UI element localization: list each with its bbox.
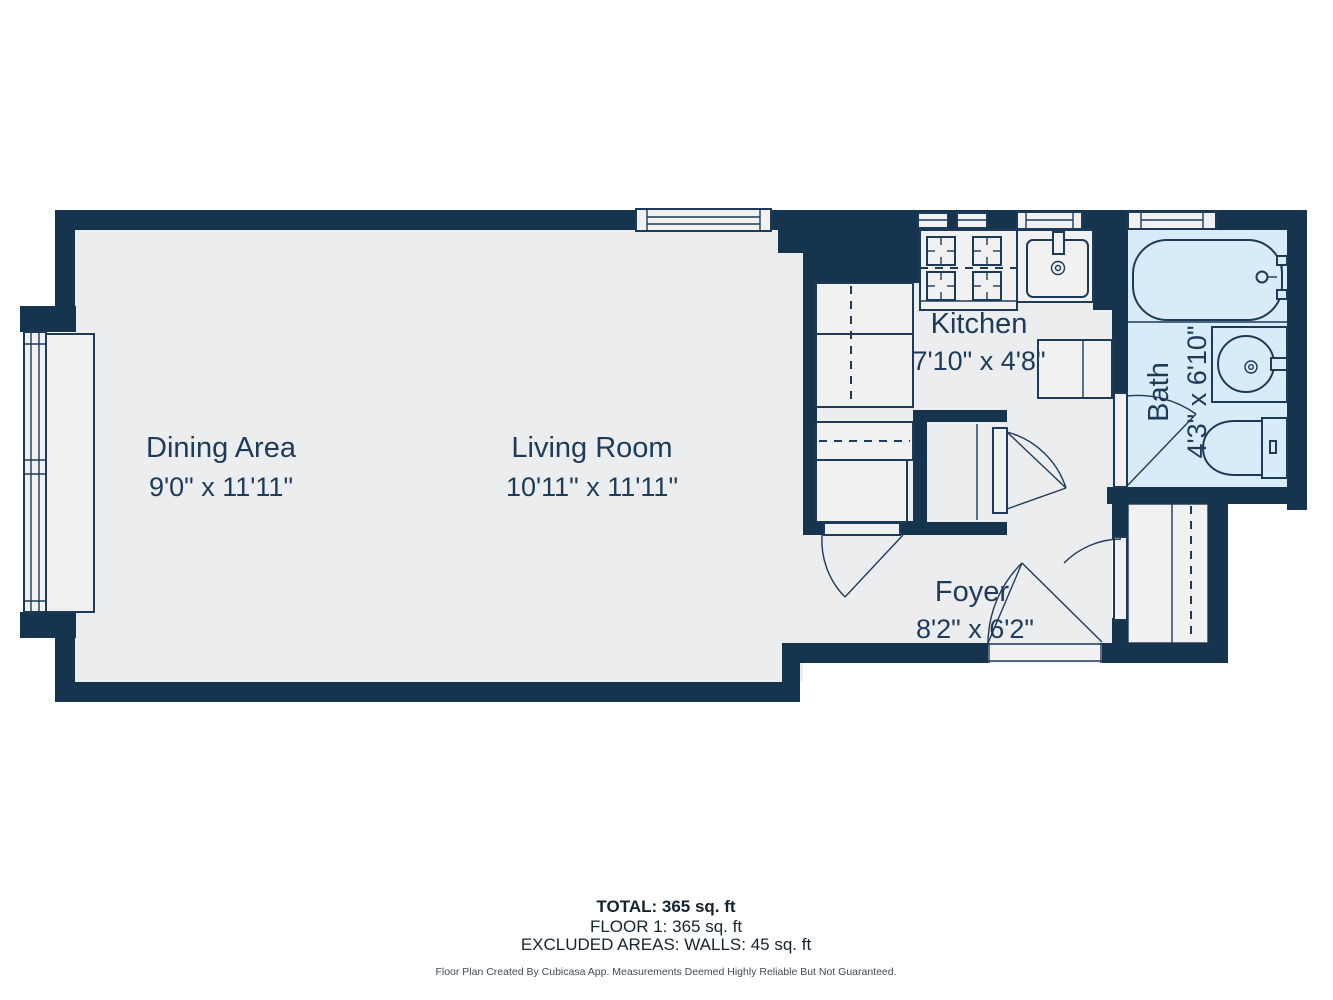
kitchen-label: Kitchen — [931, 308, 1028, 340]
kitchen-sink — [1017, 230, 1093, 302]
stove-window-left — [918, 213, 948, 228]
dining-area-label: Dining Area — [146, 432, 297, 464]
bathtub — [1133, 240, 1287, 320]
floor1-area-text: FLOOR 1: 365 sq. ft — [590, 917, 742, 936]
living-room-label: Living Room — [511, 432, 672, 464]
floor-plan-page: Dining Area 9'0" x 11'11" Living Room 10… — [0, 0, 1333, 1000]
wall-closet-divider-top — [1112, 504, 1128, 539]
wall-living-kitchen-divider — [803, 230, 817, 535]
wall-foyer-bottom — [782, 643, 988, 663]
excluded-area-text: EXCLUDED AREAS: WALLS: 45 sq. ft — [521, 935, 812, 954]
kitchen-sink-window — [1017, 212, 1082, 229]
wall-bath-bottom — [1107, 487, 1307, 504]
wall-utility-top — [913, 410, 1007, 422]
dining-area-dims: 9'0" x 11'11" — [149, 472, 293, 502]
wall-utility-bottom — [913, 522, 1007, 535]
wall-kitchen-top-mass — [817, 230, 920, 283]
wall-closetdoor-stub-left — [803, 521, 824, 535]
disclaimer-text: Floor Plan Created By Cubicasa App. Meas… — [435, 966, 896, 978]
toilet — [1203, 418, 1287, 478]
total-area-text: TOTAL: 365 sq. ft — [596, 897, 736, 916]
lower-cabinet-block — [816, 422, 913, 522]
wall-bath-left — [1112, 210, 1128, 393]
wall-closet-divider-bottom — [1112, 618, 1128, 643]
bath-label: Bath — [1143, 362, 1175, 422]
wall-utility-left — [913, 422, 927, 535]
window-seat — [46, 334, 94, 612]
wardrobe-closet — [1128, 504, 1208, 643]
stove-window-right — [957, 213, 987, 228]
bath-window — [1128, 212, 1216, 229]
bath-dims: 4'3" x 6'10" — [1182, 325, 1212, 458]
kitchen-dims: 7'10" x 4'8" — [912, 346, 1045, 376]
wall-closet-right — [1208, 504, 1228, 663]
wall-bay-top — [20, 306, 76, 332]
corridor-cabinet — [1038, 340, 1112, 398]
wall-bath-right — [1287, 210, 1307, 510]
floor-plan-canvas: Dining Area 9'0" x 11'11" Living Room 10… — [0, 0, 1333, 1000]
foyer-dims: 8'2" x 6'2" — [916, 614, 1034, 644]
counter-cabinet-block — [816, 283, 913, 407]
utility-closet-floor — [927, 422, 993, 522]
stove-burners — [920, 230, 1017, 310]
wall-bottom-main — [55, 682, 800, 702]
summary-block: TOTAL: 365 sq. ft FLOOR 1: 365 sq. ft EX… — [435, 897, 896, 978]
wall-corner-chunk — [778, 230, 803, 253]
foyer-label: Foyer — [935, 576, 1009, 608]
living-room-dims: 10'11" x 11'11" — [506, 472, 678, 502]
bath-sink — [1212, 327, 1287, 402]
living-room-window — [636, 209, 771, 231]
bay-window — [24, 332, 94, 612]
